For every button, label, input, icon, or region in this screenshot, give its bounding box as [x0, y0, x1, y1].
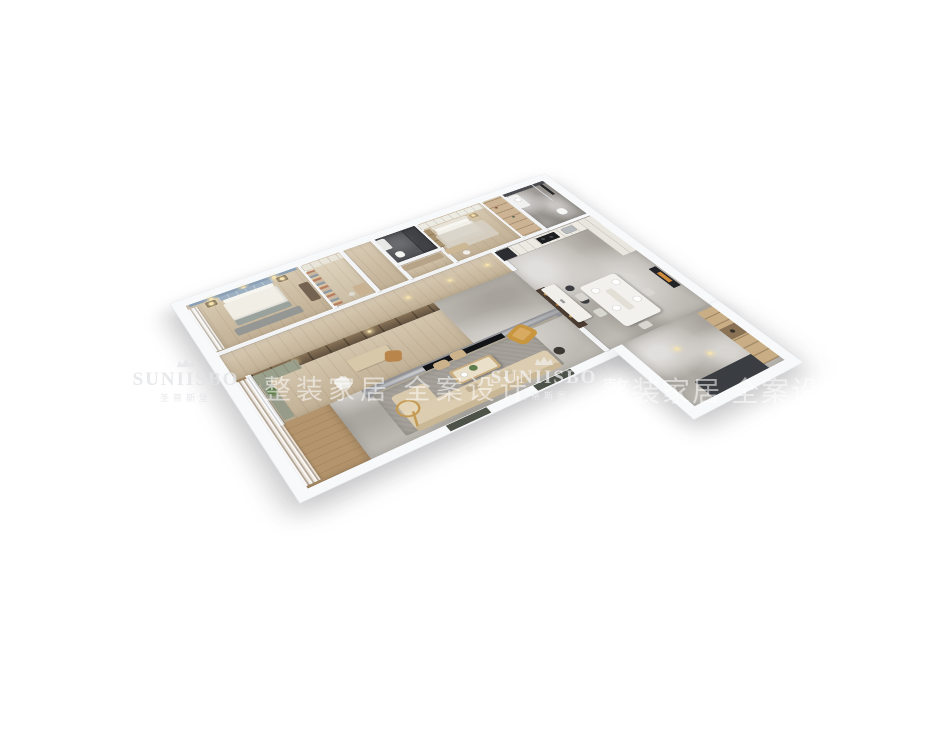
floorplan-scene [170, 174, 802, 594]
crown-icon [175, 358, 197, 369]
render-canvas: SUNIISBO 圣蒂斯堡 整装家居 全案设计 SUNIISBO 圣蒂斯堡 整装… [0, 0, 950, 733]
study-chair [385, 350, 402, 362]
